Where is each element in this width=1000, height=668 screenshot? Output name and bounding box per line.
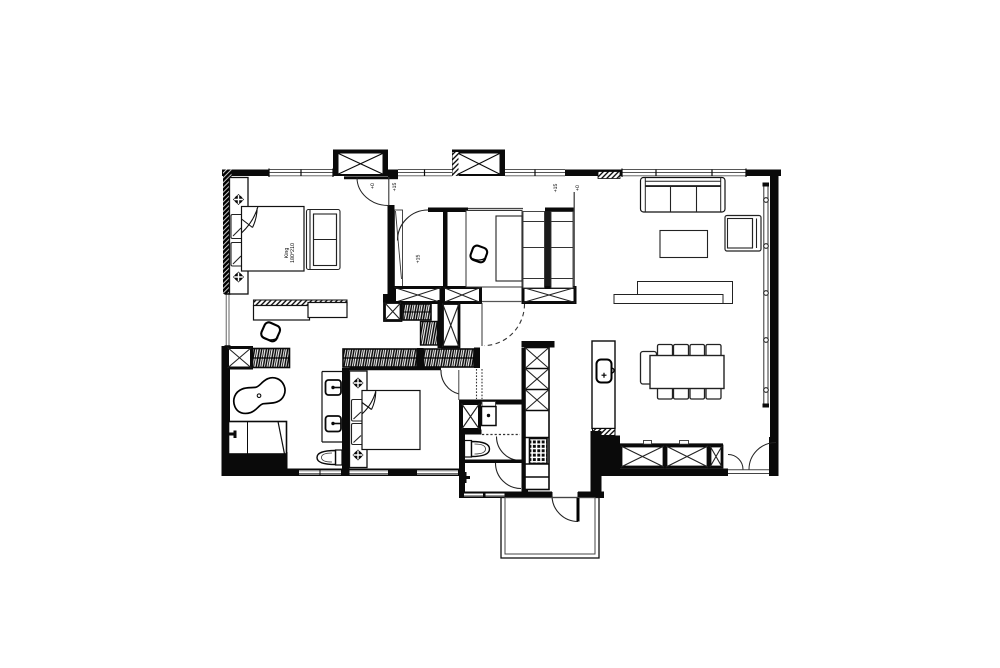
svg-text:+0: +0 [370,183,376,189]
svg-text:+15: +15 [553,183,559,192]
svg-text:+15: +15 [392,182,398,191]
svg-text:+0: +0 [575,185,581,191]
svg-text:+15: +15 [416,254,422,263]
svg-text:180*210: 180*210 [290,243,296,263]
